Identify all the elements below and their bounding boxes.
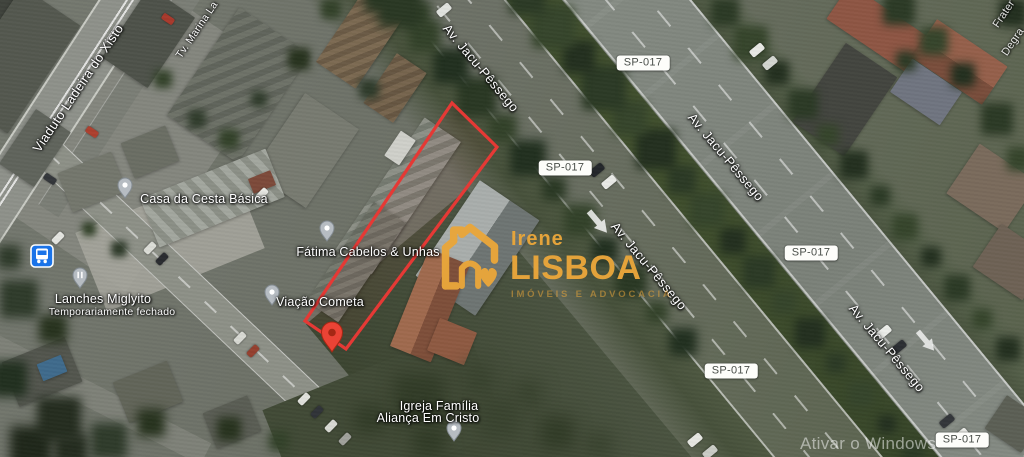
map-overlay-svg xyxy=(0,0,1024,457)
bus-stop-icon[interactable] xyxy=(31,245,53,267)
poi-label-fatima-cabelos-unhas[interactable]: Fátima Cabelos & Unhas xyxy=(296,245,439,259)
route-badge-sp017: SP-017 xyxy=(539,161,592,176)
poi-label-igreja-line2[interactable]: Aliança Em Cristo xyxy=(377,411,480,425)
road-arrow-marking xyxy=(913,327,939,354)
road-arrow-marking xyxy=(584,207,613,237)
route-badge-sp017: SP-017 xyxy=(705,364,758,379)
route-badge-sp017: SP-017 xyxy=(785,246,838,261)
route-badge-sp017: SP-017 xyxy=(936,433,989,448)
gray-poi-pin-icon[interactable] xyxy=(320,221,334,241)
poi-label-casa-da-cesta-basica[interactable]: Casa da Cesta Básica xyxy=(140,192,268,206)
poi-label-lanches-miglyito[interactable]: Lanches Miglyito xyxy=(55,292,151,306)
red-map-pin-icon[interactable] xyxy=(322,322,343,352)
gray-poi-pin-icon[interactable] xyxy=(118,178,132,198)
restaurant-poi-pin-icon[interactable] xyxy=(73,268,87,288)
satellite-map-viewport[interactable]: Viaduto Ladeira do Xisto Tv. Marina La A… xyxy=(0,0,1024,457)
poi-label-viacao-cometa[interactable]: Viação Cometa xyxy=(276,295,364,309)
route-badge-sp017: SP-017 xyxy=(617,56,670,71)
os-activation-watermark: Ativar o Windows xyxy=(800,434,936,454)
poi-status-temporarily-closed: Temporariamente fechado xyxy=(49,306,176,318)
